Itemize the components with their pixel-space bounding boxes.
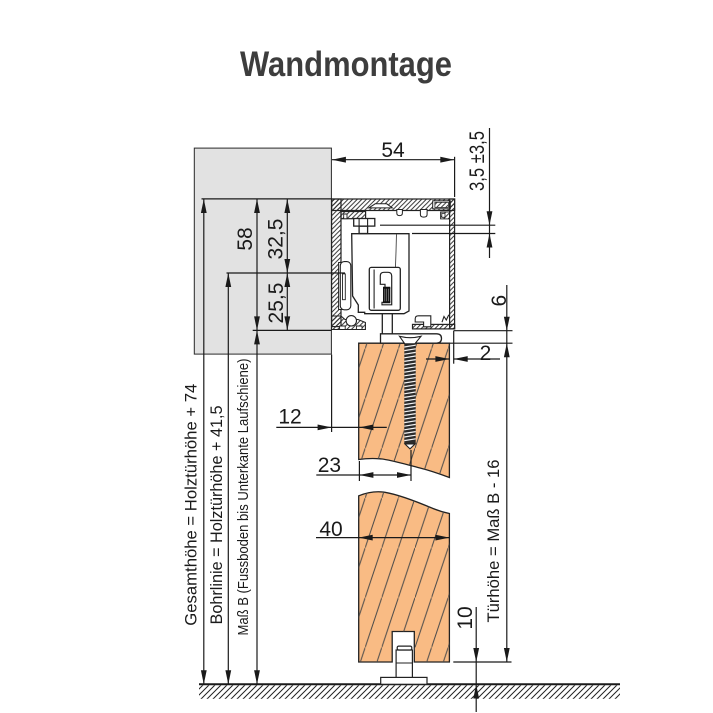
svg-text:10: 10 [454,606,477,629]
svg-text:3,5 ±3,5: 3,5 ±3,5 [466,131,489,191]
svg-text:Maß B (Fussboden bis Unterkant: Maß B (Fussboden bis Unterkante Laufschi… [235,359,252,636]
svg-text:58: 58 [234,227,257,250]
svg-text:6: 6 [488,295,511,307]
svg-text:40: 40 [319,518,342,541]
svg-text:Gesamthöhe = Holztürhöhe + 74: Gesamthöhe = Holztürhöhe + 74 [182,384,201,626]
svg-text:23: 23 [318,454,341,477]
svg-text:Wandmontage: Wandmontage [240,45,452,84]
svg-text:54: 54 [381,139,405,162]
svg-text:Türhöhe = Maß B - 16: Türhöhe = Maß B - 16 [484,460,503,623]
svg-text:12: 12 [278,406,301,429]
svg-text:32,5: 32,5 [265,219,288,260]
svg-text:Bohrlinie = Holztürhöhe + 41,5: Bohrlinie = Holztürhöhe + 41,5 [207,406,226,625]
svg-text:2: 2 [480,342,492,365]
svg-text:25,5: 25,5 [265,283,288,324]
